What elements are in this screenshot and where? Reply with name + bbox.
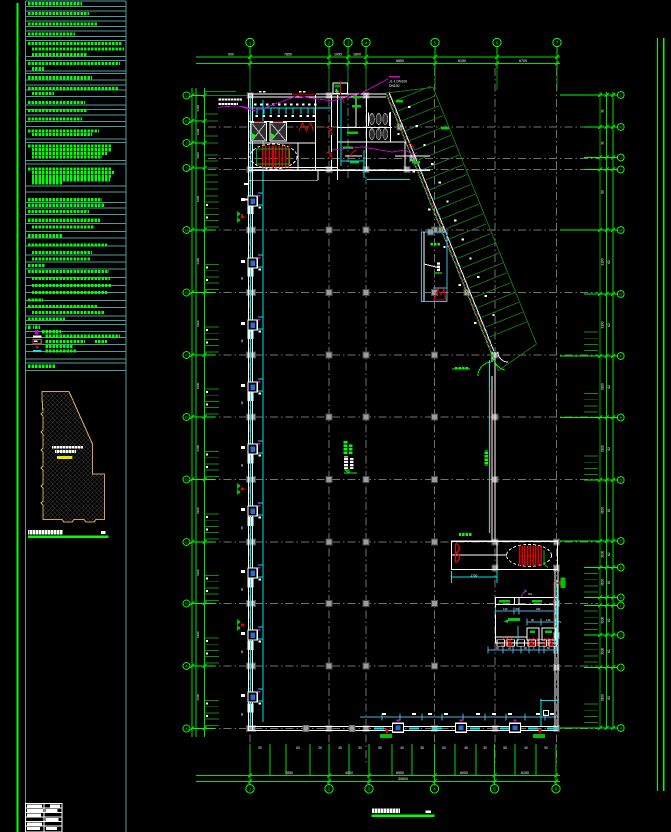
svg-text:7850: 7850 <box>285 771 293 775</box>
svg-text:31: 31 <box>601 109 605 113</box>
svg-text:45: 45 <box>338 746 342 750</box>
svg-text:6550: 6550 <box>396 771 404 775</box>
svg-text:900: 900 <box>228 53 234 57</box>
svg-text:3100: 3100 <box>601 579 605 586</box>
svg-text:1950: 1950 <box>334 53 342 57</box>
svg-text:55: 55 <box>503 746 507 750</box>
svg-text:62: 62 <box>607 509 611 513</box>
svg-text:90: 90 <box>544 746 548 750</box>
svg-text:40: 40 <box>524 746 528 750</box>
svg-text:25: 25 <box>318 746 322 750</box>
svg-text:30: 30 <box>483 746 487 750</box>
svg-text:36: 36 <box>240 339 244 342</box>
svg-text:36: 36 <box>240 401 244 404</box>
svg-text:6200: 6200 <box>196 507 200 514</box>
svg-text:6200: 6200 <box>196 105 200 112</box>
svg-text:62: 62 <box>607 323 611 327</box>
svg-text:I: I <box>620 168 621 172</box>
svg-text:6200: 6200 <box>196 152 200 159</box>
svg-text:30: 30 <box>358 746 362 750</box>
svg-text:I: I <box>186 167 187 171</box>
svg-text:60: 60 <box>601 190 605 194</box>
svg-text:F: F <box>620 355 622 359</box>
svg-text:6200: 6200 <box>196 320 200 327</box>
svg-text:36: 36 <box>240 650 244 653</box>
svg-text:DN100: DN100 <box>389 84 400 88</box>
svg-text:60: 60 <box>442 746 446 750</box>
svg-text:G: G <box>619 293 622 297</box>
svg-text:L: L <box>620 94 622 98</box>
svg-text:45: 45 <box>464 746 468 750</box>
svg-text:36: 36 <box>240 588 244 591</box>
svg-text:6200: 6200 <box>196 195 200 202</box>
svg-text:WL: WL <box>528 592 533 596</box>
svg-text:6200: 6200 <box>196 631 200 638</box>
svg-text:36: 36 <box>240 713 244 716</box>
svg-text:JL-1 DN100: JL-1 DN100 <box>389 79 407 83</box>
svg-text:36: 36 <box>240 464 244 467</box>
svg-text:140: 140 <box>546 618 551 622</box>
svg-text:90: 90 <box>258 746 262 750</box>
svg-text:4: 4 <box>620 727 622 731</box>
svg-text:62: 62 <box>607 447 611 451</box>
svg-text:30600: 30600 <box>398 777 408 781</box>
svg-text:3100: 3100 <box>601 258 605 265</box>
svg-text:6700: 6700 <box>519 59 527 63</box>
svg-text:7850: 7850 <box>284 53 292 57</box>
svg-text:62: 62 <box>607 581 611 585</box>
svg-text:3100: 3100 <box>601 383 605 390</box>
svg-text:3100: 3100 <box>601 694 605 701</box>
svg-text:J: J <box>186 142 188 146</box>
svg-text:490: 490 <box>536 607 541 611</box>
svg-text:6000: 6000 <box>460 771 468 775</box>
svg-text:2: 2 <box>558 621 562 623</box>
svg-text:6200: 6200 <box>196 382 200 389</box>
svg-text:6200: 6200 <box>196 694 200 701</box>
svg-text:3100: 3100 <box>601 550 605 557</box>
svg-text:36: 36 <box>240 526 244 529</box>
svg-text:6850: 6850 <box>396 59 404 63</box>
svg-text:3100: 3100 <box>601 616 605 623</box>
svg-text:6150: 6150 <box>458 59 466 63</box>
svg-text:3: 3 <box>620 666 622 670</box>
svg-text:2750: 2750 <box>471 574 478 578</box>
svg-text:55: 55 <box>378 746 382 750</box>
svg-text:62: 62 <box>607 552 611 556</box>
svg-text:6200: 6200 <box>196 258 200 265</box>
svg-text:2: 2 <box>620 634 622 638</box>
svg-text:3100: 3100 <box>601 647 605 654</box>
svg-text:6200: 6200 <box>196 128 200 135</box>
svg-text:L: L <box>186 94 188 98</box>
svg-text:36: 36 <box>240 277 244 280</box>
svg-text:6150: 6150 <box>521 771 529 775</box>
svg-text:62: 62 <box>607 260 611 264</box>
svg-text:1: 1 <box>620 604 622 608</box>
svg-text:62: 62 <box>607 696 611 700</box>
svg-text:G: G <box>185 291 188 295</box>
svg-text:40: 40 <box>400 746 404 750</box>
svg-text:60: 60 <box>296 746 300 750</box>
svg-text:62: 62 <box>607 618 611 622</box>
svg-text:+: + <box>524 589 526 593</box>
svg-text:F: F <box>185 354 187 358</box>
svg-text:62: 62 <box>607 385 611 389</box>
svg-text:62: 62 <box>607 649 611 653</box>
svg-text:3100: 3100 <box>601 445 605 452</box>
svg-text:1800: 1800 <box>353 53 361 57</box>
svg-text:31: 31 <box>601 141 605 145</box>
svg-text:35: 35 <box>420 746 424 750</box>
svg-text:4000: 4000 <box>345 771 353 775</box>
svg-text:6200: 6200 <box>196 569 200 576</box>
svg-text:6200: 6200 <box>196 445 200 452</box>
svg-text:140: 140 <box>503 607 508 611</box>
svg-text:3100: 3100 <box>601 321 605 328</box>
svg-text:J: J <box>620 156 622 160</box>
svg-text:3100: 3100 <box>601 507 605 514</box>
